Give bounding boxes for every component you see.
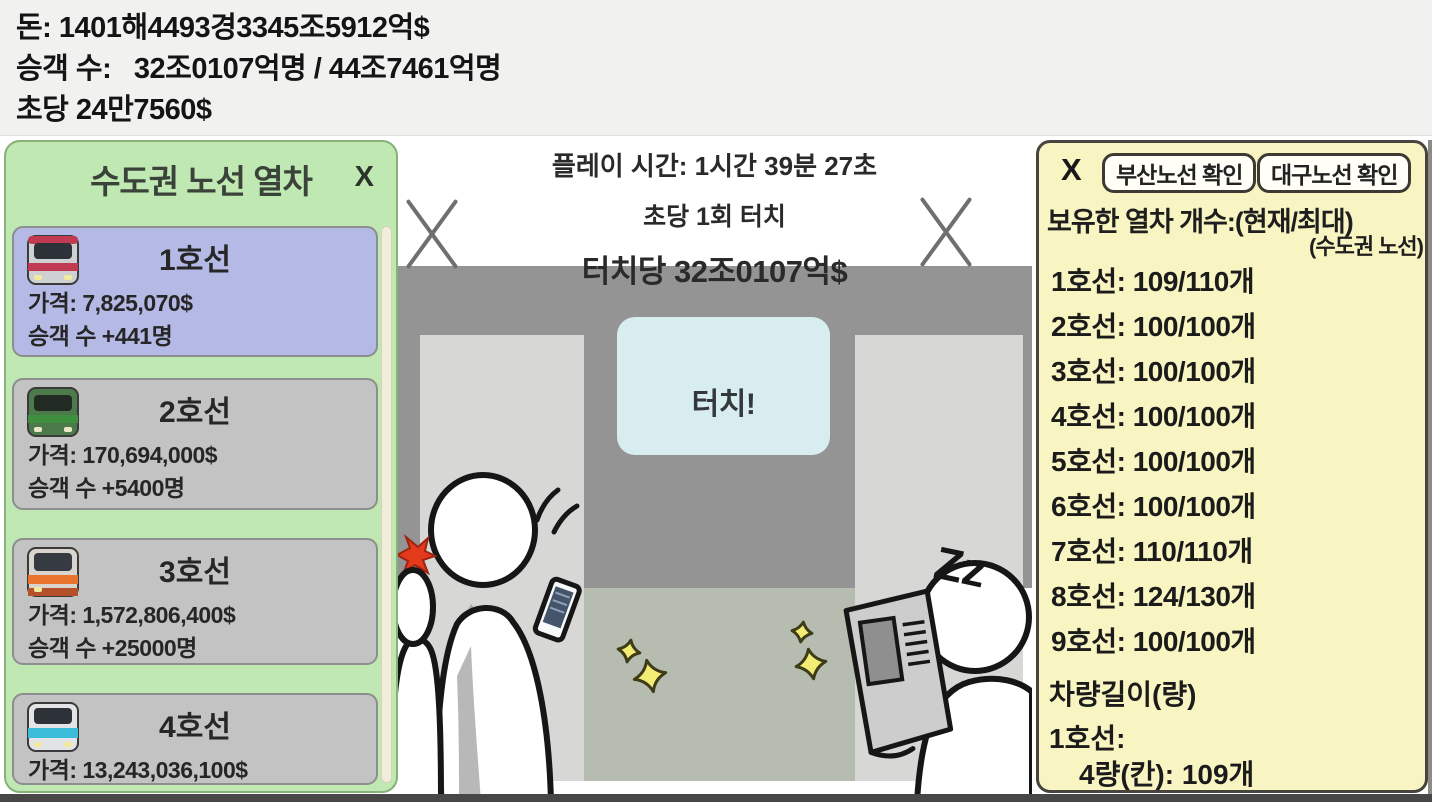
per-touch-value-label: 터치당 32조0107억$ (397, 246, 1032, 291)
owned-row-line4: 4호선: 100/100개 (1051, 394, 1256, 439)
train-price: 가격: 7,825,070$ (28, 284, 192, 318)
car-length-value: 4량(칸): 109개 (1079, 753, 1254, 793)
train-price: 가격: 1,572,806,400$ (28, 596, 235, 630)
owned-trains-subtitle: (수도권 노선) (1309, 229, 1423, 261)
station-floor (584, 588, 855, 781)
train-price: 가격: 13,243,036,100$ (28, 751, 248, 785)
touch-button[interactable]: 터치! (617, 317, 830, 455)
panel-title: 수도권 노선 열차 (6, 155, 396, 203)
close-icon[interactable]: X (1055, 151, 1088, 189)
station-door-left (420, 335, 584, 781)
scrollbar[interactable] (381, 226, 392, 783)
close-icon[interactable]: X (349, 160, 380, 195)
owned-row-line6: 6호선: 100/100개 (1051, 484, 1256, 529)
car-length-line-label: 1호선: (1049, 717, 1125, 757)
bottom-edge-bar (0, 794, 1432, 802)
train-name: 3호선 (14, 547, 376, 591)
car-length-title: 차량길이(량) (1049, 673, 1196, 713)
owned-row-line2: 2호선: 100/100개 (1051, 304, 1256, 349)
owned-row-line7: 7호선: 110/110개 (1051, 529, 1256, 574)
owned-row-line9: 9호선: 100/100개 (1051, 619, 1256, 664)
train-card-line2[interactable]: 2호선 가격: 170,694,000$ 승객 수 +5400명 (12, 378, 378, 510)
train-name: 4호선 (14, 702, 376, 746)
owned-row-line3: 3호선: 100/100개 (1051, 349, 1256, 394)
owned-trains-list: 1호선: 109/110개 2호선: 100/100개 3호선: 100/100… (1051, 259, 1256, 664)
station-door-right (855, 335, 1023, 781)
play-time-label: 플레이 시간: 1시간 39분 27초 (397, 146, 1032, 183)
train-name: 2호선 (14, 387, 376, 431)
train-name: 1호선 (14, 235, 376, 279)
owned-row-line8: 8호선: 124/130개 (1051, 574, 1256, 619)
passenger-stat: 승객 수: 32조0107억명 / 44조7461억명 (16, 49, 1432, 90)
owned-row-line5: 5호선: 100/100개 (1051, 439, 1256, 484)
daegu-line-check-button[interactable]: 대구노선 확인 (1257, 153, 1411, 193)
income-per-second-stat: 초당 24만7560$ (16, 90, 1432, 131)
train-passengers: 승객 수 +441명 (28, 317, 172, 351)
train-card-line1[interactable]: 1호선 가격: 7,825,070$ 승객 수 +441명 (12, 226, 378, 357)
train-passengers: 승객 수 +25000명 (28, 629, 197, 663)
owned-trains-title: 보유한 열차 개수:(현재/최대) (1047, 200, 1353, 239)
stage-info: 플레이 시간: 1시간 39분 27초 초당 1회 터치 터치당 32조0107… (397, 146, 1032, 291)
busan-line-check-button[interactable]: 부산노선 확인 (1102, 153, 1256, 193)
train-card-line4[interactable]: 4호선 가격: 13,243,036,100$ (12, 693, 378, 785)
money-stat: 돈: 1401해4493경3345조5912억$ (16, 8, 1432, 49)
game-screen: 돈: 1401해4493경3345조5912억$ 승객 수: 32조0107억명… (0, 0, 1432, 802)
owned-row-line1: 1호선: 109/110개 (1051, 259, 1256, 304)
metro-line-panel: 수도권 노선 열차 X 1호선 가격: 7,825,070$ 승객 수 +441… (4, 140, 398, 793)
train-card-line3[interactable]: 3호선 가격: 1,572,806,400$ 승객 수 +25000명 (12, 538, 378, 665)
station-stage: 플레이 시간: 1시간 39분 27초 초당 1회 터치 터치당 32조0107… (397, 136, 1032, 802)
train-price: 가격: 170,694,000$ (28, 436, 217, 470)
owned-trains-panel: X 부산노선 확인 대구노선 확인 보유한 열차 개수:(현재/최대) (수도권… (1036, 140, 1428, 793)
screen-edge (1428, 140, 1432, 802)
touch-rate-label: 초당 1회 터치 (397, 197, 1032, 233)
train-passengers: 승객 수 +5400명 (28, 469, 185, 503)
stats-bar: 돈: 1401해4493경3345조5912억$ 승객 수: 32조0107억명… (0, 0, 1432, 136)
